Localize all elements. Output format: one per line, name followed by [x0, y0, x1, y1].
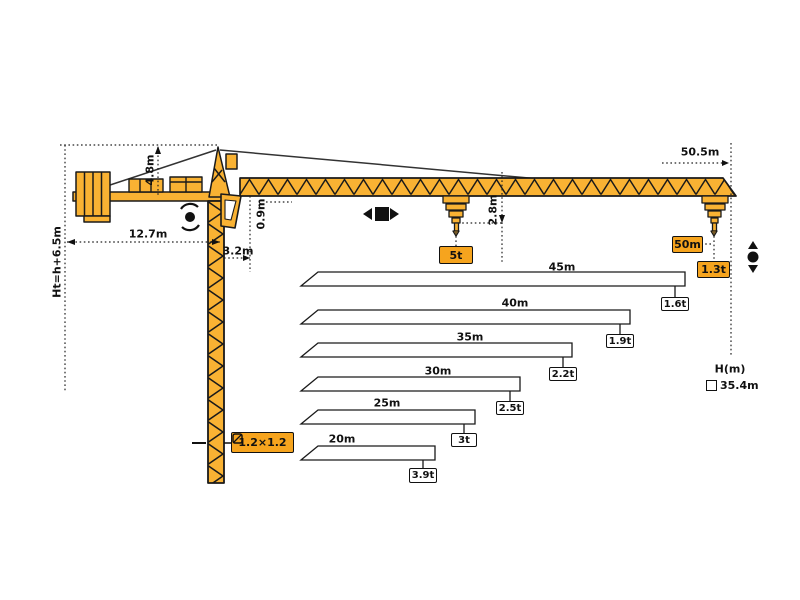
hoist-machinery	[129, 177, 202, 192]
height-axis-value-row: 35.4m	[706, 379, 759, 392]
trolley-hook-tip	[702, 196, 728, 236]
capacity-box: 2.2t	[549, 367, 577, 381]
jib-span-label: 50.5m	[681, 146, 720, 159]
load-bar-25m	[301, 410, 475, 424]
counter-jib-label: 12.7m	[129, 228, 168, 241]
height-axis-value: 35.4m	[720, 379, 759, 392]
height-axis-label: H(m)	[715, 363, 746, 376]
bar-length-label: 20m	[329, 433, 356, 446]
capacity-box: 3.9t	[409, 468, 437, 483]
load-bar-40m	[301, 310, 630, 324]
capacity-box: 3t	[451, 433, 477, 447]
tip-radius-tag: 50m	[672, 236, 703, 253]
operator-cab	[221, 194, 241, 228]
jib-depth-label: 0.9m	[255, 199, 268, 230]
section-symbol-icon	[232, 433, 243, 444]
capacity-box: 2.5t	[496, 401, 524, 415]
apex-height-label: 4.8m	[144, 155, 157, 186]
total-height-label: Ht=h+6.5m	[51, 226, 64, 298]
jib	[240, 178, 736, 196]
tower-offset-label: 3.2m	[223, 245, 254, 258]
trolley-hook-mid	[443, 196, 469, 236]
mast-section-label: 1.2×1.2	[238, 436, 286, 449]
slewing-icon	[181, 204, 199, 230]
trolley-travel-icon	[363, 207, 399, 221]
square-legend-icon	[706, 380, 717, 391]
dimension-arrows	[67, 146, 729, 261]
crane-spec-diagram: Ht=h+6.5m 4.8m 12.7m 3.2m 0.9m 2.8m 50.5…	[0, 0, 800, 600]
hoist-up-down-icon	[748, 241, 759, 273]
capacity-box: 1.6t	[661, 297, 689, 311]
tower-apex	[209, 147, 237, 197]
capacity-box: 1.9t	[606, 334, 634, 348]
tip-capacity-tag: 1.3t	[697, 261, 730, 278]
bar-length-label: 40m	[502, 297, 529, 310]
counterweight	[76, 172, 110, 222]
bar-length-label: 45m	[549, 261, 576, 274]
bar-length-label: 35m	[457, 331, 484, 344]
load-bar-45m	[301, 272, 685, 286]
load-bar-30m	[301, 377, 520, 391]
load-bar-20m	[301, 446, 435, 460]
load-chart-bars	[301, 272, 685, 460]
hook-clearance-label: 2.8m	[487, 195, 500, 226]
mast-section-tag: 1.2×1.2	[231, 432, 294, 453]
bar-length-label: 30m	[425, 365, 452, 378]
bar-length-label: 25m	[374, 397, 401, 410]
load-bar-35m	[301, 343, 572, 357]
max-capacity-tag: 5t	[439, 246, 473, 264]
